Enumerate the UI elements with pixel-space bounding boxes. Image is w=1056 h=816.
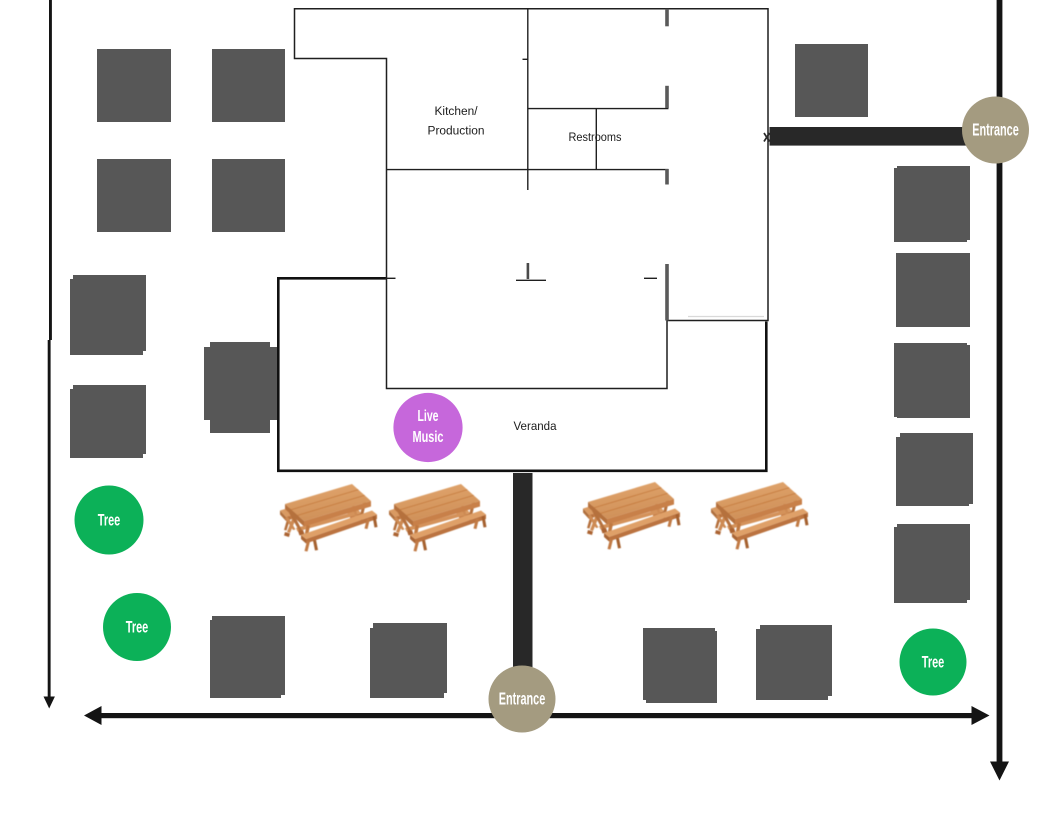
svg-text:Live: Live bbox=[418, 408, 439, 425]
svg-text:Tree: Tree bbox=[98, 512, 121, 530]
svg-text:Entrance: Entrance bbox=[972, 120, 1019, 140]
svg-text:Production: Production bbox=[428, 124, 485, 138]
svg-text:Tree: Tree bbox=[126, 619, 149, 637]
svg-text:Entrance: Entrance bbox=[499, 689, 546, 709]
svg-text:Tree: Tree bbox=[922, 654, 945, 672]
svg-text:Restrooms: Restrooms bbox=[569, 130, 622, 144]
svg-text:Veranda: Veranda bbox=[514, 419, 557, 433]
svg-text:Kitchen/: Kitchen/ bbox=[435, 104, 479, 118]
svg-text:Music: Music bbox=[413, 429, 444, 446]
